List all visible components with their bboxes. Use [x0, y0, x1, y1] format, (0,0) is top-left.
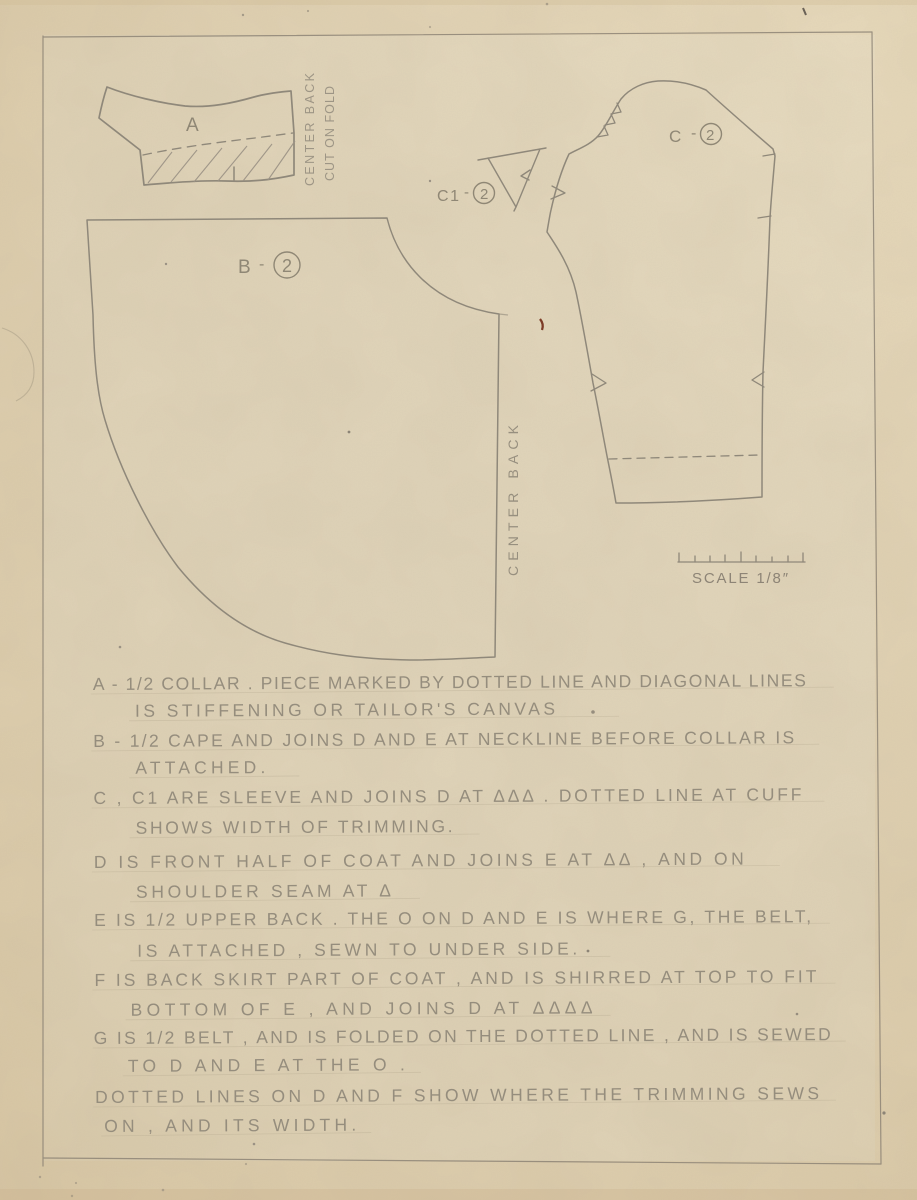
svg-text:C: C [669, 127, 681, 146]
svg-text:-: - [691, 125, 696, 142]
svg-text:ATTACHED.: ATTACHED. [135, 757, 265, 778]
svg-text:2: 2 [282, 256, 292, 276]
svg-text:IS ATTACHED , SEWN TO UNDER SI: IS ATTACHED , SEWN TO UNDER SIDE. [137, 938, 577, 960]
svg-text:B: B [238, 257, 251, 278]
svg-text:C , C1 ARE SLEEVE AND JOINS D: C , C1 ARE SLEEVE AND JOINS D AT ΔΔΔ . D… [93, 784, 801, 808]
svg-text:CUT ON FOLD: CUT ON FOLD [323, 85, 337, 181]
svg-text:CENTER BACK: CENTER BACK [505, 424, 521, 576]
svg-text:BOTTOM OF E , AND JOINS D AT Δ: BOTTOM OF E , AND JOINS D AT ΔΔΔΔ [131, 997, 593, 1019]
svg-text:C1: C1 [437, 188, 459, 205]
svg-text:A: A [186, 115, 199, 136]
svg-text:2: 2 [706, 127, 714, 144]
svg-text:SHOULDER SEAM AT Δ: SHOULDER SEAM AT Δ [136, 880, 391, 901]
svg-text:DOTTED LINES ON D AND F SHOW W: DOTTED LINES ON D AND F SHOW WHERE THE T… [95, 1083, 819, 1107]
svg-text:A - 1/2 COLLAR . PIECE MARKED: A - 1/2 COLLAR . PIECE MARKED BY DOTTED … [93, 670, 806, 694]
svg-text:-: - [464, 184, 469, 201]
svg-text:SCALE 1/8″: SCALE 1/8″ [692, 570, 789, 587]
svg-text:-: - [259, 256, 264, 273]
svg-text:SHOWS WIDTH OF TRIMMING.: SHOWS WIDTH OF TRIMMING. [136, 816, 453, 838]
svg-text:CENTER BACK: CENTER BACK [303, 72, 317, 186]
svg-text:2: 2 [480, 186, 488, 203]
